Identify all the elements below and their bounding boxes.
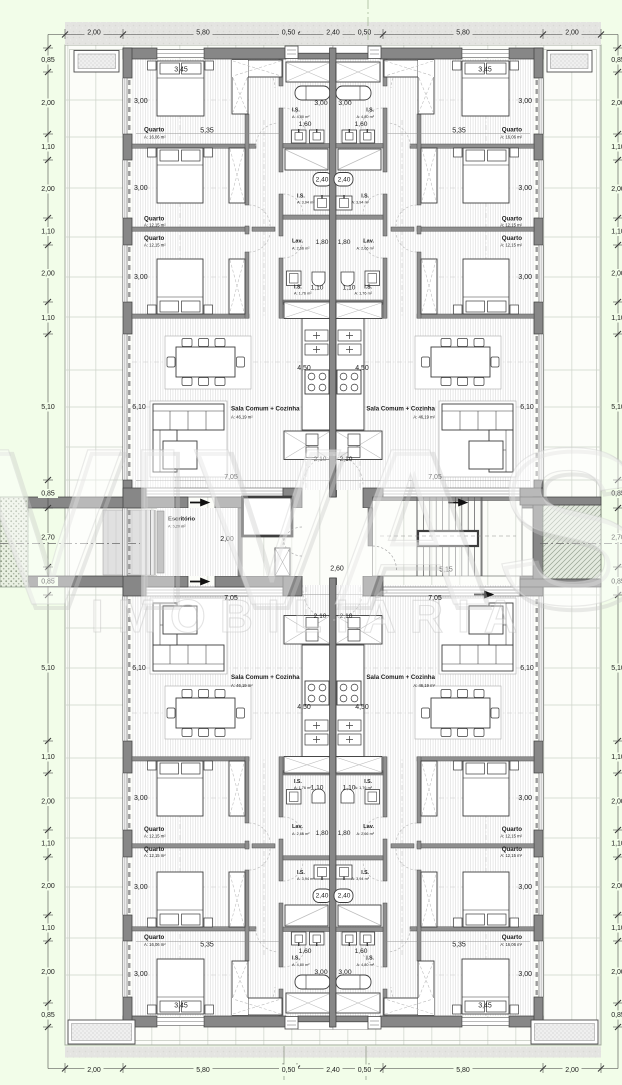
svg-text:I.S.: I.S. — [292, 955, 300, 961]
svg-text:A: 16,06 m²: A: 16,06 m² — [144, 135, 166, 140]
svg-text:Sala Comum + Cozinha: Sala Comum + Cozinha — [366, 674, 435, 681]
svg-text:5,10: 5,10 — [611, 665, 622, 672]
svg-text:I.S.: I.S. — [366, 955, 374, 961]
svg-text:3,00: 3,00 — [518, 795, 532, 802]
svg-text:Quarto: Quarto — [502, 235, 523, 242]
svg-text:A: 46,19 m²: A: 46,19 m² — [413, 683, 435, 688]
svg-text:A: 1,76 m²: A: 1,76 m² — [294, 786, 312, 790]
svg-text:2,00: 2,00 — [87, 1067, 101, 1074]
svg-text:2,00: 2,00 — [41, 270, 55, 277]
svg-text:A: 3,94 m²: A: 3,94 m² — [351, 201, 369, 205]
svg-text:Quarto: Quarto — [502, 846, 523, 853]
svg-text:3,00: 3,00 — [134, 971, 148, 978]
svg-text:I.S.: I.S. — [366, 107, 374, 113]
svg-text:5,80: 5,80 — [456, 30, 470, 37]
svg-text:3,00: 3,00 — [314, 100, 327, 107]
svg-text:I.S.: I.S. — [361, 193, 369, 199]
svg-text:A: 1,76 m²: A: 1,76 m² — [354, 786, 372, 790]
svg-text:3,00: 3,00 — [338, 969, 351, 976]
svg-text:3,00: 3,00 — [338, 100, 351, 107]
svg-text:A: 4,80 m²: A: 4,80 m² — [292, 115, 310, 119]
svg-text:5,80: 5,80 — [456, 1067, 470, 1074]
svg-text:Lav.: Lav. — [363, 824, 374, 830]
svg-text:Quarto: Quarto — [502, 216, 523, 223]
svg-text:1,10: 1,10 — [41, 144, 55, 151]
svg-text:A: 16,06 m²: A: 16,06 m² — [500, 135, 522, 140]
svg-text:Lav.: Lav. — [363, 238, 374, 244]
svg-text:1,80: 1,80 — [316, 239, 329, 246]
svg-text:2,00: 2,00 — [611, 883, 622, 890]
svg-text:4,50: 4,50 — [297, 365, 311, 372]
svg-text:A: 2,66 m²: A: 2,66 m² — [292, 832, 310, 836]
svg-text:1,10: 1,10 — [311, 284, 324, 291]
svg-text:2,40: 2,40 — [326, 30, 340, 37]
svg-text:I.S.: I.S. — [361, 870, 369, 876]
svg-text:Quarto: Quarto — [144, 235, 165, 242]
svg-text:5,80: 5,80 — [196, 30, 210, 37]
svg-text:2,40: 2,40 — [316, 176, 329, 183]
svg-text:5,10: 5,10 — [41, 665, 55, 672]
svg-text:3,00: 3,00 — [518, 884, 532, 891]
svg-text:Quarto: Quarto — [144, 846, 165, 853]
svg-text:1,10: 1,10 — [343, 784, 356, 791]
svg-text:A: 3,94 m²: A: 3,94 m² — [297, 201, 315, 205]
svg-text:1,10: 1,10 — [41, 754, 55, 761]
svg-text:1,10: 1,10 — [611, 925, 622, 932]
svg-text:A: 2,66 m²: A: 2,66 m² — [356, 247, 374, 251]
svg-text:4,50: 4,50 — [355, 365, 369, 372]
svg-text:Quarto: Quarto — [502, 127, 523, 134]
svg-text:2,00: 2,00 — [611, 270, 622, 277]
svg-text:A: 1,76 m²: A: 1,76 m² — [294, 292, 312, 296]
svg-text:0,50: 0,50 — [358, 1067, 372, 1074]
svg-text:1,10: 1,10 — [41, 840, 55, 847]
svg-text:2,00: 2,00 — [611, 798, 622, 805]
svg-text:2,40: 2,40 — [316, 892, 329, 899]
svg-text:1,10: 1,10 — [41, 315, 55, 322]
svg-text:3,45: 3,45 — [174, 66, 188, 73]
svg-text:0,85: 0,85 — [41, 1012, 55, 1019]
svg-text:3,00: 3,00 — [518, 185, 532, 192]
svg-text:Quarto: Quarto — [144, 127, 165, 134]
svg-text:0,85: 0,85 — [41, 57, 55, 64]
svg-text:2,40: 2,40 — [338, 176, 351, 183]
svg-text:A: 12,15 m²: A: 12,15 m² — [500, 243, 522, 248]
svg-text:A: 1,76 m²: A: 1,76 m² — [354, 292, 372, 296]
svg-text:A: 12,15 m²: A: 12,15 m² — [500, 853, 522, 858]
svg-text:Lav.: Lav. — [292, 238, 303, 244]
svg-text:0,85: 0,85 — [611, 57, 622, 64]
svg-text:Quarto: Quarto — [144, 934, 165, 941]
svg-text:Lav.: Lav. — [292, 824, 303, 830]
svg-text:A: 12,15 m²: A: 12,15 m² — [144, 243, 166, 248]
svg-text:1,60: 1,60 — [299, 948, 312, 955]
svg-text:3,00: 3,00 — [134, 795, 148, 802]
svg-text:1,60: 1,60 — [355, 121, 368, 128]
svg-text:1,10: 1,10 — [611, 840, 622, 847]
svg-text:I.S.: I.S. — [294, 284, 302, 290]
svg-text:2,00: 2,00 — [41, 186, 55, 193]
svg-text:I.S.: I.S. — [292, 107, 300, 113]
svg-text:3,00: 3,00 — [134, 185, 148, 192]
svg-text:3,00: 3,00 — [134, 274, 148, 281]
svg-text:3,00: 3,00 — [314, 969, 327, 976]
svg-text:A: 12,15 m²: A: 12,15 m² — [500, 834, 522, 839]
svg-text:1,80: 1,80 — [338, 239, 351, 246]
svg-text:3,00: 3,00 — [134, 884, 148, 891]
svg-text:0,85: 0,85 — [611, 1012, 622, 1019]
svg-text:2,00: 2,00 — [41, 798, 55, 805]
svg-text:A: 4,80 m²: A: 4,80 m² — [356, 115, 374, 119]
svg-text:A: 2,66 m²: A: 2,66 m² — [292, 247, 310, 251]
svg-text:2,00: 2,00 — [565, 30, 579, 37]
svg-text:0,50: 0,50 — [282, 1067, 296, 1074]
svg-text:4,50: 4,50 — [297, 704, 311, 711]
svg-text:1,10: 1,10 — [311, 784, 324, 791]
svg-text:I.S.: I.S. — [364, 779, 372, 785]
svg-text:A: 4,80 m²: A: 4,80 m² — [292, 963, 310, 967]
svg-text:IMOBILIÁRIA: IMOBILIÁRIA — [91, 590, 531, 642]
svg-text:Sala Comum + Cozinha: Sala Comum + Cozinha — [231, 674, 300, 681]
svg-text:A: 46,19 m²: A: 46,19 m² — [231, 683, 253, 688]
svg-text:A: 16,06 m²: A: 16,06 m² — [500, 942, 522, 947]
svg-text:5,35: 5,35 — [452, 941, 466, 948]
svg-text:A: 12,15 m²: A: 12,15 m² — [500, 223, 522, 228]
svg-text:3,45: 3,45 — [478, 66, 492, 73]
svg-text:2,00: 2,00 — [41, 100, 55, 107]
svg-text:3,00: 3,00 — [518, 971, 532, 978]
svg-text:2,40: 2,40 — [326, 1067, 340, 1074]
svg-text:2,00: 2,00 — [611, 186, 622, 193]
svg-text:1,80: 1,80 — [316, 830, 329, 837]
svg-text:3,00: 3,00 — [518, 274, 532, 281]
svg-text:3,45: 3,45 — [174, 1002, 188, 1009]
svg-text:1,10: 1,10 — [611, 228, 622, 235]
svg-text:6,10: 6,10 — [520, 665, 534, 672]
svg-text:A: 3,94 m²: A: 3,94 m² — [297, 877, 315, 881]
svg-text:1,10: 1,10 — [611, 315, 622, 322]
svg-text:Quarto: Quarto — [144, 216, 165, 223]
svg-text:1,10: 1,10 — [41, 925, 55, 932]
svg-text:I.S.: I.S. — [297, 870, 305, 876]
svg-text:A: 2,66 m²: A: 2,66 m² — [356, 832, 374, 836]
svg-text:5,80: 5,80 — [196, 1067, 210, 1074]
svg-text:Quarto: Quarto — [502, 934, 523, 941]
svg-text:1,10: 1,10 — [611, 144, 622, 151]
svg-text:0,50: 0,50 — [358, 30, 372, 37]
svg-text:I.S.: I.S. — [297, 193, 305, 199]
svg-text:1,60: 1,60 — [299, 121, 312, 128]
svg-text:2,00: 2,00 — [87, 30, 101, 37]
svg-text:I.S.: I.S. — [364, 284, 372, 290]
svg-text:2,00: 2,00 — [41, 883, 55, 890]
svg-text:A: 4,80 m²: A: 4,80 m² — [356, 963, 374, 967]
svg-text:1,60: 1,60 — [355, 948, 368, 955]
svg-text:3,00: 3,00 — [134, 98, 148, 105]
svg-text:A: 12,15 m²: A: 12,15 m² — [144, 223, 166, 228]
svg-text:A: 16,06 m²: A: 16,06 m² — [144, 942, 166, 947]
svg-text:2,00: 2,00 — [611, 969, 622, 976]
svg-text:1,10: 1,10 — [343, 284, 356, 291]
svg-text:2,00: 2,00 — [41, 969, 55, 976]
svg-text:Quarto: Quarto — [144, 826, 165, 833]
svg-text:1,10: 1,10 — [611, 754, 622, 761]
svg-text:Quarto: Quarto — [502, 826, 523, 833]
svg-text:1,80: 1,80 — [338, 830, 351, 837]
svg-text:2,00: 2,00 — [565, 1067, 579, 1074]
svg-text:4,50: 4,50 — [355, 704, 369, 711]
svg-text:2,40: 2,40 — [338, 892, 351, 899]
svg-text:5,35: 5,35 — [200, 941, 214, 948]
svg-text:I.S.: I.S. — [294, 779, 302, 785]
svg-text:2,00: 2,00 — [611, 100, 622, 107]
svg-text:1,10: 1,10 — [41, 228, 55, 235]
svg-text:A: 12,15 m²: A: 12,15 m² — [144, 853, 166, 858]
svg-text:3,45: 3,45 — [478, 1002, 492, 1009]
svg-text:3,00: 3,00 — [518, 98, 532, 105]
svg-text:A: 3,94 m²: A: 3,94 m² — [351, 877, 369, 881]
svg-text:0,50: 0,50 — [282, 30, 296, 37]
svg-text:6,10: 6,10 — [132, 665, 146, 672]
svg-text:A: 12,15 m²: A: 12,15 m² — [144, 834, 166, 839]
